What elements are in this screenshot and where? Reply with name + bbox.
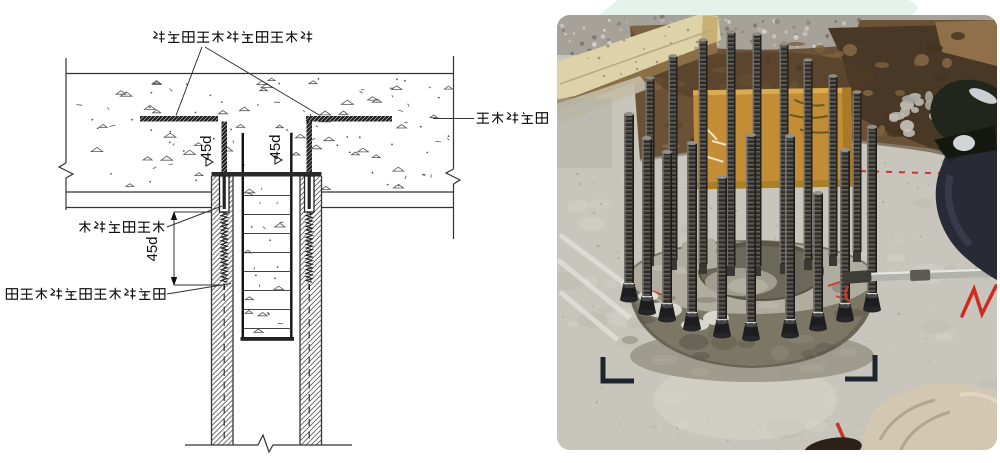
svg-text:45d: 45d [144,236,161,261]
svg-text:45d: 45d [198,135,215,160]
